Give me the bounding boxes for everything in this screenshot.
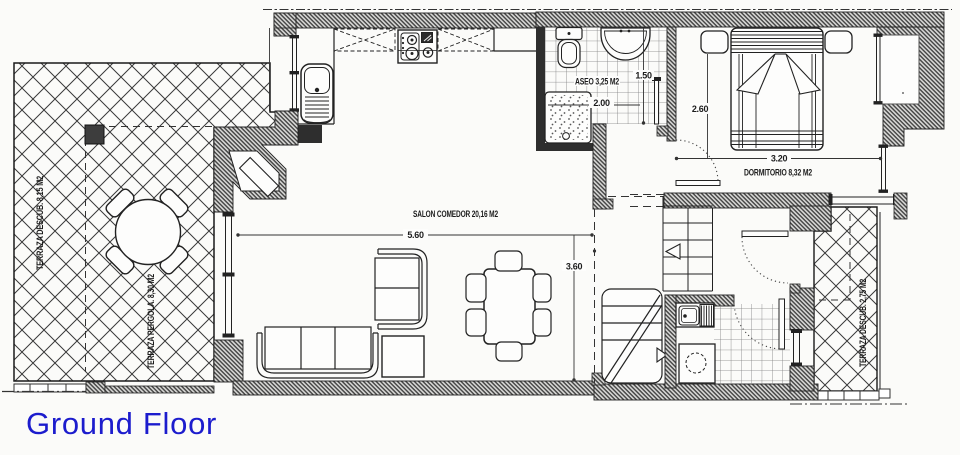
svg-text:SALON COMEDOR 20,16 M2: SALON COMEDOR 20,16 M2 [413, 209, 498, 220]
svg-text:2.60: 2.60 [692, 104, 709, 114]
svg-text:ASEO 3,25 M2: ASEO 3,25 M2 [575, 77, 619, 88]
svg-text:TERRAZA PERGOLA. 8,30 M2: TERRAZA PERGOLA. 8,30 M2 [146, 274, 156, 369]
svg-text:TERRAZA DESCUB. 2,75 M2: TERRAZA DESCUB. 2,75 M2 [858, 279, 868, 367]
svg-text:Ground Floor: Ground Floor [26, 406, 217, 441]
svg-text:2.00: 2.00 [593, 98, 610, 108]
svg-text:5.60: 5.60 [407, 230, 424, 240]
svg-text:1.50: 1.50 [635, 71, 652, 81]
svg-text:3.20: 3.20 [771, 154, 788, 164]
svg-text:DORMITORIO 8,32 M2: DORMITORIO 8,32 M2 [744, 168, 812, 179]
svg-text:3.60: 3.60 [566, 262, 583, 272]
svg-text:TERRAZA DESCUB. 8,15 M2: TERRAZA DESCUB. 8,15 M2 [35, 176, 45, 270]
